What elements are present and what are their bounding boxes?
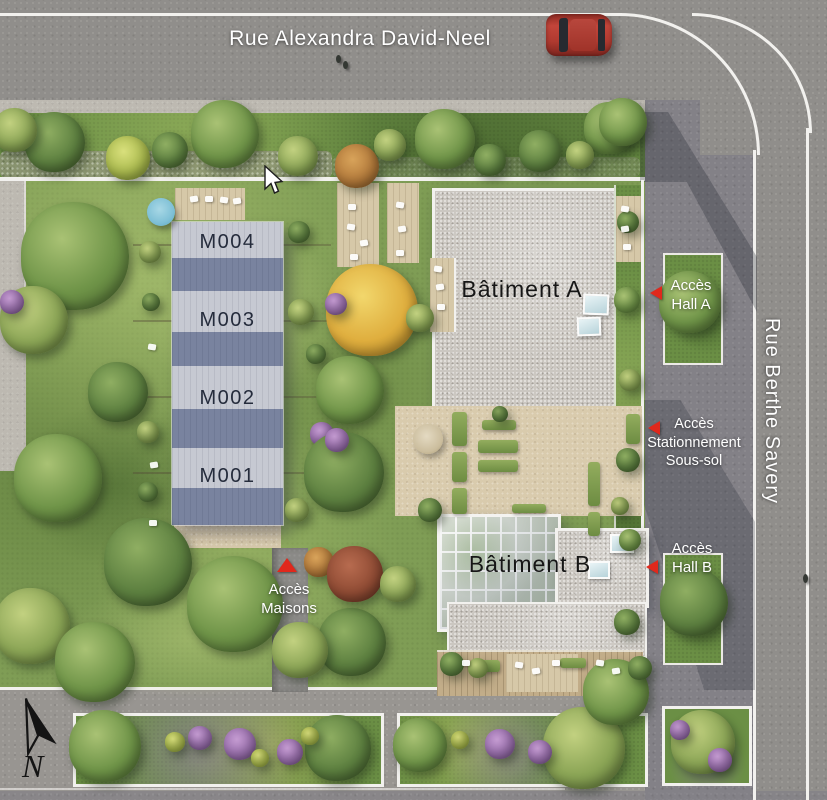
tree [305, 715, 371, 781]
deck-chair [437, 304, 445, 310]
tree [104, 518, 192, 606]
deck-chair [396, 201, 405, 208]
curb-line-bottom [0, 788, 565, 790]
access-hall-b-arrow-icon [646, 560, 658, 574]
deck-chair [532, 667, 541, 674]
planter-row [478, 440, 518, 453]
maison-roof-stripe [172, 332, 283, 366]
garden-deck [337, 183, 379, 267]
bush [468, 658, 488, 678]
maison-label-m002: M002 [172, 387, 283, 410]
deck-chair [350, 254, 358, 260]
bush [142, 293, 160, 311]
planter-row [560, 658, 586, 668]
pedestrian [336, 55, 341, 63]
deck-chair [621, 205, 630, 212]
bush [301, 727, 319, 745]
maison-roof-stripe [172, 258, 283, 291]
bush [288, 221, 310, 243]
tree [380, 566, 416, 602]
maison-label-m004: M004 [172, 231, 283, 254]
bush [528, 740, 552, 764]
access-hall-a-label: Accès Hall A [660, 276, 722, 314]
access-maisons-arrow-icon [277, 558, 297, 572]
pedestrian [803, 574, 808, 583]
deck-chair [398, 225, 407, 232]
deck-chair [149, 520, 157, 526]
bush [628, 656, 652, 680]
access-maisons-label: Accès Maisons [250, 580, 328, 618]
deck-chair [148, 343, 157, 350]
deck-chair [623, 244, 631, 250]
bush [485, 729, 515, 759]
sidewalk-top [0, 100, 645, 113]
maison-roof-stripe [172, 409, 283, 448]
tree [106, 136, 150, 180]
deck-chair [596, 659, 605, 666]
maison-roof-stripe [172, 488, 283, 525]
pedestrian [343, 61, 348, 69]
planter-row [478, 460, 518, 472]
planter-row [452, 452, 467, 482]
street-bottom-edge [0, 791, 827, 800]
bush [374, 129, 406, 161]
planter-row [512, 504, 546, 513]
bush [492, 406, 508, 422]
maison-label-m003: M003 [172, 309, 283, 332]
deck-chair [348, 204, 356, 210]
deck-chair [190, 195, 199, 202]
deck-chair [434, 265, 443, 272]
tree [191, 100, 259, 168]
street-name-right: Rue Berthe Savery [760, 318, 783, 504]
tree [272, 622, 328, 678]
tree [393, 718, 447, 772]
deck-chair [462, 660, 470, 666]
bush [165, 732, 185, 752]
lane-line-right [806, 128, 809, 800]
deck-chair [150, 461, 159, 468]
car-rear-window [598, 19, 605, 51]
bush [451, 731, 469, 749]
tree [316, 356, 384, 424]
deck-chair [552, 660, 560, 666]
tree [660, 568, 728, 636]
cursor-icon [262, 165, 284, 195]
bush [474, 144, 506, 176]
access-line: Accès [641, 415, 747, 434]
planter-row [588, 462, 600, 506]
access-line: Accès [250, 580, 328, 599]
bush [406, 304, 434, 332]
deck-chair [233, 197, 242, 204]
car-roof [570, 19, 596, 51]
deck-chair [621, 225, 630, 232]
bush [619, 529, 641, 551]
bush [138, 482, 158, 502]
tree [519, 130, 561, 172]
bush [325, 293, 347, 315]
skylight [577, 317, 602, 337]
tree [278, 136, 318, 176]
curb-line-right [753, 150, 756, 800]
deck-chair [396, 250, 404, 256]
deck-chair [347, 223, 356, 230]
tree [152, 132, 188, 168]
tree [14, 434, 102, 522]
curb-line-top [0, 13, 622, 16]
compass-n-label: N [22, 748, 43, 785]
deck-chair [360, 239, 369, 246]
access-line: Accès [662, 539, 722, 558]
access-line: Accès [660, 276, 722, 295]
bush [325, 428, 349, 452]
access-line: Stationnement [641, 434, 747, 453]
parasol-teal [147, 198, 175, 226]
bush [285, 498, 309, 522]
site-plan: M004 M003 M002 M001 Bâtiment A Bâtiment … [0, 0, 827, 800]
planter-row [452, 412, 467, 446]
bush [614, 287, 640, 313]
tree [327, 546, 383, 602]
access-line: Maisons [250, 599, 328, 618]
maison-label-m001: M001 [172, 465, 283, 488]
bush [139, 241, 161, 263]
bush [418, 498, 442, 522]
building-a-label: Bâtiment A [432, 276, 612, 303]
access-line: Hall A [660, 295, 722, 314]
planter-row [588, 512, 600, 536]
bush [566, 141, 594, 169]
bush [0, 290, 24, 314]
bush [440, 652, 464, 676]
tree [599, 98, 647, 146]
tree [88, 362, 148, 422]
access-hall-b-label: Accès Hall B [662, 539, 722, 577]
tree [415, 109, 475, 169]
deck-chair [515, 661, 524, 668]
bush [288, 299, 314, 325]
parasol [413, 424, 443, 454]
bush [619, 369, 641, 391]
planter-row [626, 414, 640, 444]
access-line: Sous-sol [641, 452, 747, 471]
bush [251, 749, 269, 767]
bush [616, 448, 640, 472]
planter-row [452, 488, 467, 514]
bush [708, 748, 732, 772]
bush [277, 739, 303, 765]
deck-chair [436, 283, 445, 290]
tree [69, 710, 141, 782]
bush [137, 421, 159, 443]
tree [55, 622, 135, 702]
tree [335, 144, 379, 188]
deck-chair [205, 196, 213, 202]
street-name-top: Rue Alexandra David-Neel [150, 27, 570, 51]
bush [611, 497, 629, 515]
bush [614, 609, 640, 635]
access-line: Hall B [662, 558, 722, 577]
maisons-base-strip [174, 522, 281, 548]
bush [188, 726, 212, 750]
deck-chair [612, 667, 621, 674]
access-parking-label: Accès Stationnement Sous-sol [641, 415, 747, 471]
deck-chair [220, 196, 229, 203]
bush [306, 344, 326, 364]
bush [670, 720, 690, 740]
tree [318, 608, 386, 676]
building-b-label: Bâtiment B [430, 551, 630, 578]
